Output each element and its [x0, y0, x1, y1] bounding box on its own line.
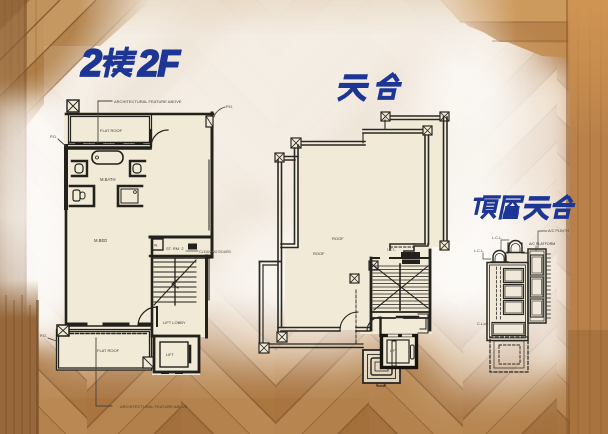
- svg-text:2: 2: [80, 43, 102, 85]
- svg-text:2F: 2F: [137, 43, 181, 84]
